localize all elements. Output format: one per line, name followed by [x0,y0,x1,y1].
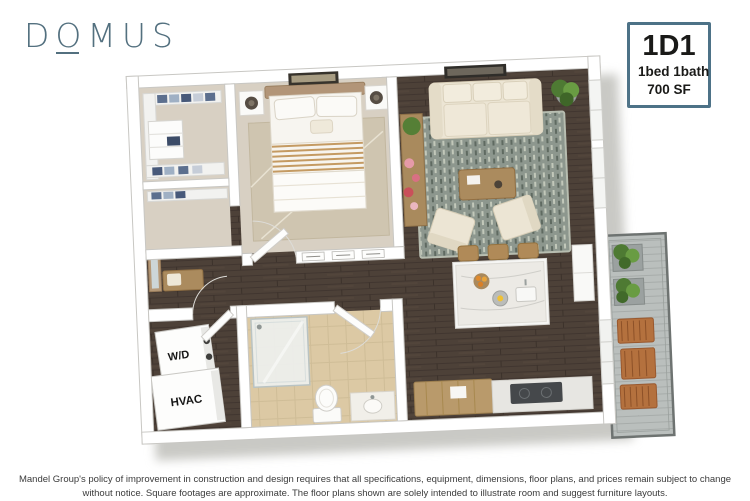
bedroom [239,81,394,241]
bar-stool-3 [518,243,539,259]
clothes-stack-1 [157,95,167,103]
bed-pillow-right [317,96,357,116]
console-table [400,114,427,227]
closet-dresser-item [167,136,180,146]
sofa-back-cushion-1 [443,83,472,102]
clothes-stack-5 [205,93,215,101]
balcony-planter-1 [612,243,643,271]
sofa-back-cushion-3 [503,81,528,100]
balcony-table [621,348,656,379]
window-1-mullion [590,110,602,111]
balcony-chair-2 [620,384,657,410]
clothes-stack-8 [178,166,188,174]
bar-stool-2 [488,244,509,260]
cooktop [510,382,563,404]
coffee-table [459,168,516,200]
nightstand-left [239,91,264,116]
balcony-chair-1 [617,318,654,344]
bed-stripe-blanket [271,140,364,174]
wall-bedroom-bottom-a [242,253,253,265]
island-sink [516,287,537,302]
kitchen-island [453,258,550,328]
window-2-mullion [593,178,605,179]
bed-pillow-left [274,96,316,120]
sofa [429,78,543,139]
clothes-stack-7 [164,167,174,175]
sofa-seat-cushion-2 [488,101,531,135]
closet-dresser [148,120,184,159]
balcony-chair-1-seat [617,318,654,344]
bar-stool-1 [458,245,479,261]
sofa-arm-left [429,83,443,139]
linen-stack-3 [175,191,185,198]
page: DOMUS 1D1 1bed 1bath 700 SF [0,0,750,501]
sofa-back-cushion-2 [473,82,502,101]
balcony-door-opening [599,320,614,384]
sofa-seat-cushion-1 [444,103,487,137]
clothes-stack-3 [181,94,191,102]
balcony-chair-2-seat [620,384,657,410]
clothes-stack-9 [192,165,202,173]
linen-stack-2 [163,192,173,199]
disclaimer-text: Mandel Group's policy of improvement in … [10,473,740,501]
linen-stack-1 [151,192,161,199]
dining-table-paper [450,386,467,399]
coffee-table-top [459,168,516,200]
vanity [350,391,395,421]
floor-plan: W/D HVAC [0,0,750,501]
balcony-planter-2 [613,277,644,305]
clothes-stack-6 [152,167,162,175]
hall-bench-pillow [167,273,182,286]
clothes-stack-2 [169,94,179,102]
clothes-stack-4 [193,93,203,101]
bed-accent-pillow [310,120,333,134]
hvac-unit: HVAC [151,368,225,430]
hall-mirror-glass [151,258,159,288]
bed-duvet-foot [273,170,367,212]
hall-bench [163,269,204,291]
shower [251,317,310,387]
nightstand-right [365,85,388,110]
bar-stools [458,243,539,261]
plan-rotated-group: W/D HVAC [126,53,674,461]
vanity-sink [364,399,383,414]
coffee-table-book [467,175,480,185]
wall-hall-bottom-a [148,308,192,322]
